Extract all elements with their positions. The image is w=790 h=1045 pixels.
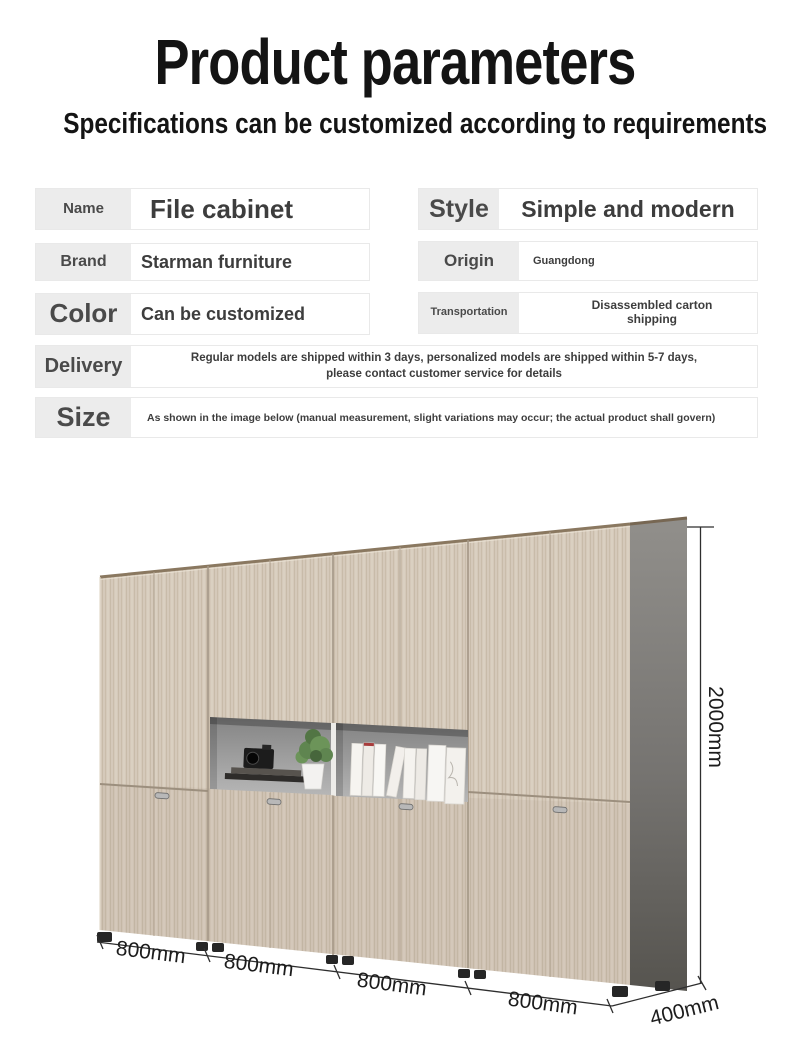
page-subtitle: Specifications can be customized accordi…	[63, 108, 727, 141]
spec-row-brand: Brand Starman furniture	[35, 243, 370, 281]
spec-value-style: Simple and modern	[499, 189, 757, 229]
cabinet-side-panel	[630, 518, 687, 991]
spec-value-transportation: Disassembled carton shipping	[519, 293, 757, 333]
spec-label-transportation: Transportation	[419, 293, 519, 333]
cabinet-illustration	[97, 518, 687, 997]
width-label-2: 800mm	[223, 950, 295, 981]
spec-row-transportation: Transportation Disassembled carton shipp…	[418, 292, 758, 334]
spec-label-brand: Brand	[36, 244, 131, 280]
height-label: 2000mm	[704, 686, 727, 768]
spec-label-style: Style	[419, 189, 499, 229]
spec-row-size: Size As shown in the image below (manual…	[35, 397, 758, 438]
spec-value-delivery-text: Regular models are shipped within 3 days…	[177, 351, 712, 382]
spec-row-color: Color Can be customized	[35, 293, 370, 335]
page-title: Product parameters	[71, 22, 719, 102]
spec-value-brand: Starman furniture	[131, 244, 369, 280]
spec-value-name: File cabinet	[131, 189, 369, 229]
spec-label-origin: Origin	[419, 242, 519, 280]
width-label-4: 800mm	[507, 988, 579, 1020]
width-label-1: 800mm	[115, 937, 187, 968]
spec-row-origin: Origin Guangdong	[418, 241, 758, 281]
spec-value-delivery: Regular models are shipped within 3 days…	[131, 346, 757, 387]
width-label-3: 800mm	[356, 969, 428, 1001]
spec-row-delivery: Delivery Regular models are shipped with…	[35, 345, 758, 388]
spec-label-delivery: Delivery	[36, 346, 131, 387]
spec-row-style: Style Simple and modern	[418, 188, 758, 230]
spec-label-color: Color	[36, 294, 131, 334]
spec-value-color: Can be customized	[131, 294, 369, 334]
spec-label-name: Name	[36, 189, 131, 229]
product-diagram: 800mm 800mm 800mm 800mm 400mm 2000mm	[0, 455, 790, 1045]
depth-label: 400mm	[648, 991, 722, 1030]
spec-value-size: As shown in the image below (manual meas…	[131, 398, 757, 437]
decor-book-row	[350, 742, 466, 804]
spec-row-name: Name File cabinet	[35, 188, 370, 230]
spec-value-origin: Guangdong	[519, 242, 757, 280]
spec-label-size: Size	[36, 398, 131, 437]
spec-value-transportation-text: Disassembled carton shipping	[575, 299, 730, 327]
